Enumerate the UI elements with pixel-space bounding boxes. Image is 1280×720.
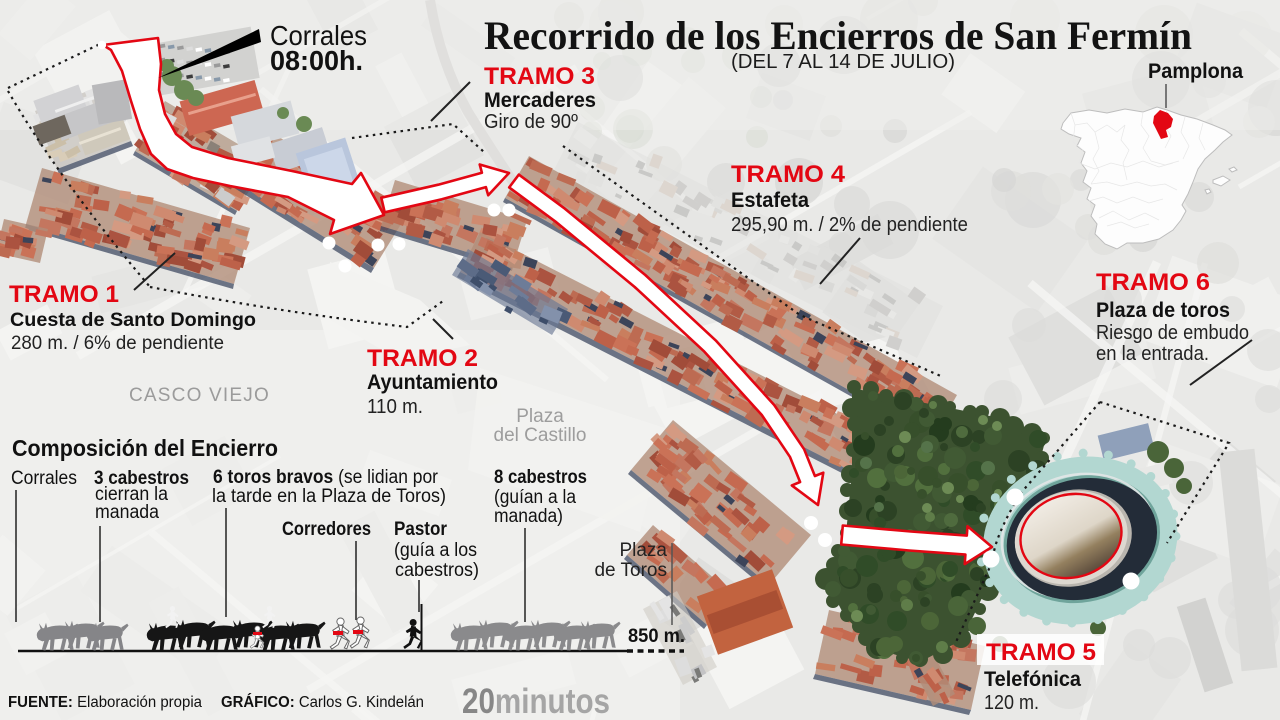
svg-text:TRAMO 4: TRAMO 4 [731, 161, 846, 188]
svg-text:Pamplona: Pamplona [1148, 60, 1243, 83]
svg-text:(guía a los: (guía a los [394, 540, 477, 561]
svg-text:08:00h.: 08:00h. [270, 45, 363, 76]
svg-text:Plaza: Plaza [619, 540, 667, 561]
svg-text:850 m.: 850 m. [628, 626, 685, 647]
svg-text:6 toros bravos (se lidian por: 6 toros bravos (se lidian por [213, 467, 439, 488]
svg-text:Composición del Encierro: Composición del Encierro [12, 435, 278, 461]
svg-text:TRAMO 1: TRAMO 1 [9, 281, 119, 308]
svg-text:8 cabestros: 8 cabestros [494, 467, 587, 488]
svg-text:20minutos: 20minutos [462, 682, 610, 720]
svg-text:TRAMO 2: TRAMO 2 [367, 345, 478, 372]
svg-text:Corredores: Corredores [282, 519, 371, 540]
svg-text:TRAMO 3: TRAMO 3 [484, 63, 595, 90]
svg-text:TRAMO 6: TRAMO 6 [1096, 269, 1210, 296]
svg-text:CASCO VIEJO: CASCO VIEJO [129, 385, 270, 406]
svg-text:Riesgo de embudo: Riesgo de embudo [1096, 322, 1249, 344]
svg-text:Cuesta de Santo Domingo: Cuesta de Santo Domingo [10, 309, 256, 331]
svg-text:cabestros): cabestros) [395, 560, 479, 581]
svg-text:de Toros: de Toros [594, 560, 667, 581]
svg-text:(DEL 7 AL 14 DE JULIO): (DEL 7 AL 14 DE JULIO) [731, 51, 955, 73]
svg-text:110 m.: 110 m. [367, 396, 423, 418]
svg-text:(guían a la: (guían a la [494, 487, 576, 508]
svg-text:295,90 m. / 2% de pendiente: 295,90 m. / 2% de pendiente [731, 214, 968, 236]
svg-text:TRAMO 5: TRAMO 5 [986, 639, 1096, 666]
svg-text:Plaza de toros: Plaza de toros [1096, 299, 1230, 322]
svg-text:en la entrada.: en la entrada. [1096, 343, 1209, 365]
svg-text:Pastor: Pastor [394, 519, 448, 540]
svg-text:manada: manada [95, 502, 159, 523]
svg-text:Corrales: Corrales [11, 468, 77, 489]
svg-text:manada): manada) [494, 506, 563, 527]
svg-text:280 m. / 6% de pendiente: 280 m. / 6% de pendiente [11, 333, 224, 354]
svg-text:la tarde en la Plaza de Toros): la tarde en la Plaza de Toros) [212, 486, 446, 507]
svg-text:120 m.: 120 m. [984, 692, 1039, 714]
svg-text:Estafeta: Estafeta [731, 189, 809, 212]
svg-text:Ayuntamiento: Ayuntamiento [367, 371, 498, 394]
svg-text:Plaza: Plaza [516, 406, 564, 427]
svg-text:Telefónica: Telefónica [984, 668, 1081, 691]
svg-text:del Castillo: del Castillo [494, 425, 587, 446]
svg-text:Mercaderes: Mercaderes [484, 89, 596, 112]
svg-text:GRÁFICO: Carlos G. Kindelán: GRÁFICO: Carlos G. Kindelán [221, 694, 424, 711]
svg-text:FUENTE: Elaboración propia: FUENTE: Elaboración propia [8, 694, 202, 711]
svg-text:Giro de 90º: Giro de 90º [484, 111, 579, 133]
